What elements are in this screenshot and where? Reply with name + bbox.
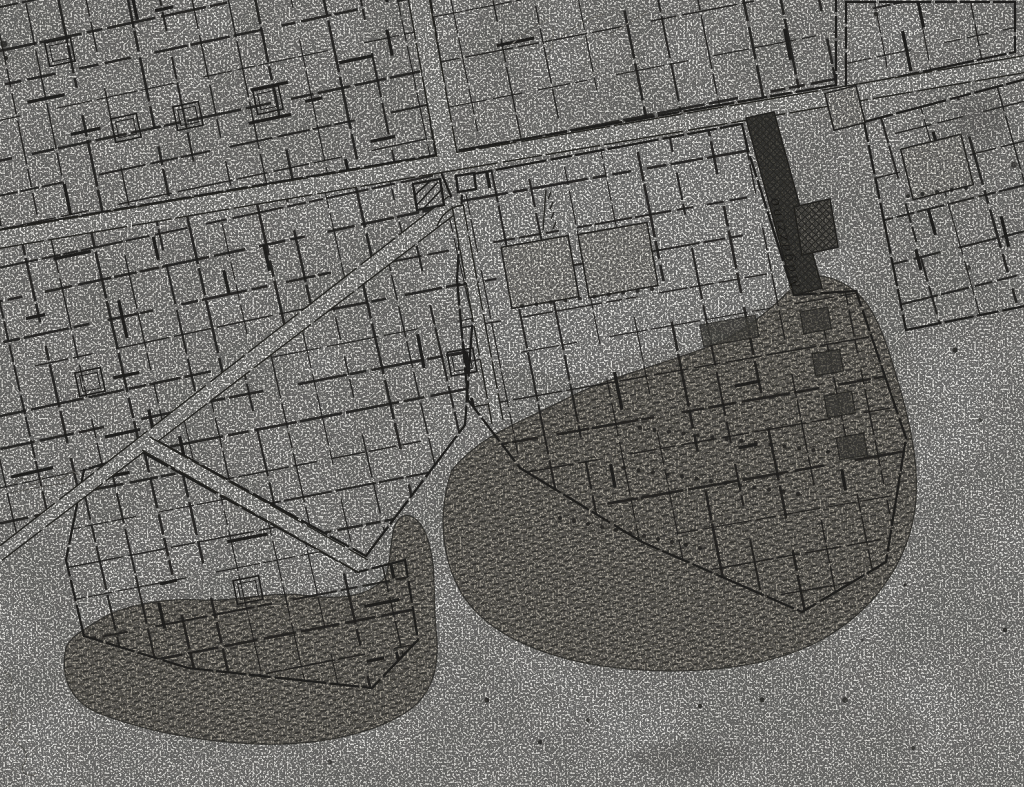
engraved-excavation-plan: Magazzino — [0, 0, 1024, 787]
print-grain-overlay — [0, 0, 1024, 787]
scanned-map-page: Magazzino — [0, 0, 1024, 787]
